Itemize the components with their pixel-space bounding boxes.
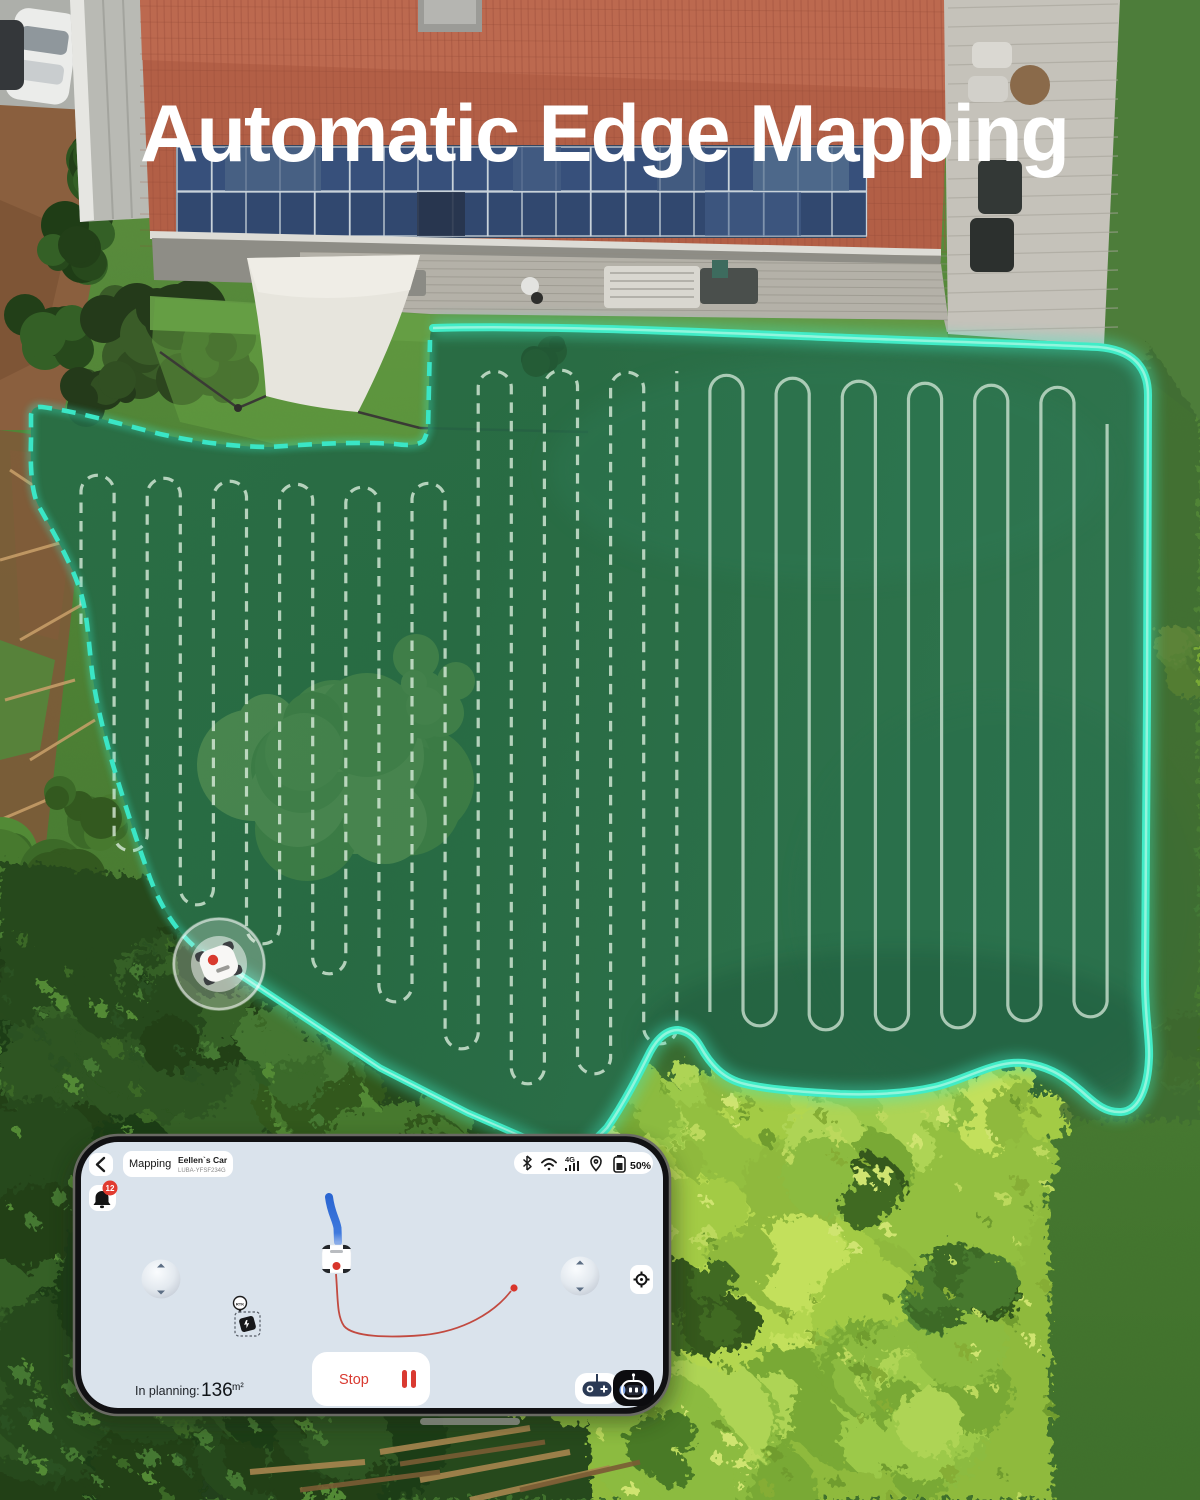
svg-text:m²: m²: [232, 1382, 244, 1393]
svg-text:In planning:: In planning:: [135, 1384, 200, 1398]
svg-text:136: 136: [201, 1380, 233, 1401]
svg-text:LUBA-YFSF234G: LUBA-YFSF234G: [178, 1168, 226, 1174]
svg-text:Automatic Edge Mapping: Automatic Edge Mapping: [140, 89, 1068, 179]
svg-text:Stop: Stop: [339, 1372, 369, 1388]
svg-text:Mapping: Mapping: [129, 1158, 171, 1170]
svg-text:12: 12: [106, 1184, 115, 1193]
svg-text:Eellen`s Car: Eellen`s Car: [178, 1155, 228, 1165]
svg-text:4G: 4G: [565, 1155, 575, 1164]
svg-text:50%: 50%: [630, 1160, 652, 1172]
svg-text:RTK: RTK: [236, 1302, 244, 1307]
